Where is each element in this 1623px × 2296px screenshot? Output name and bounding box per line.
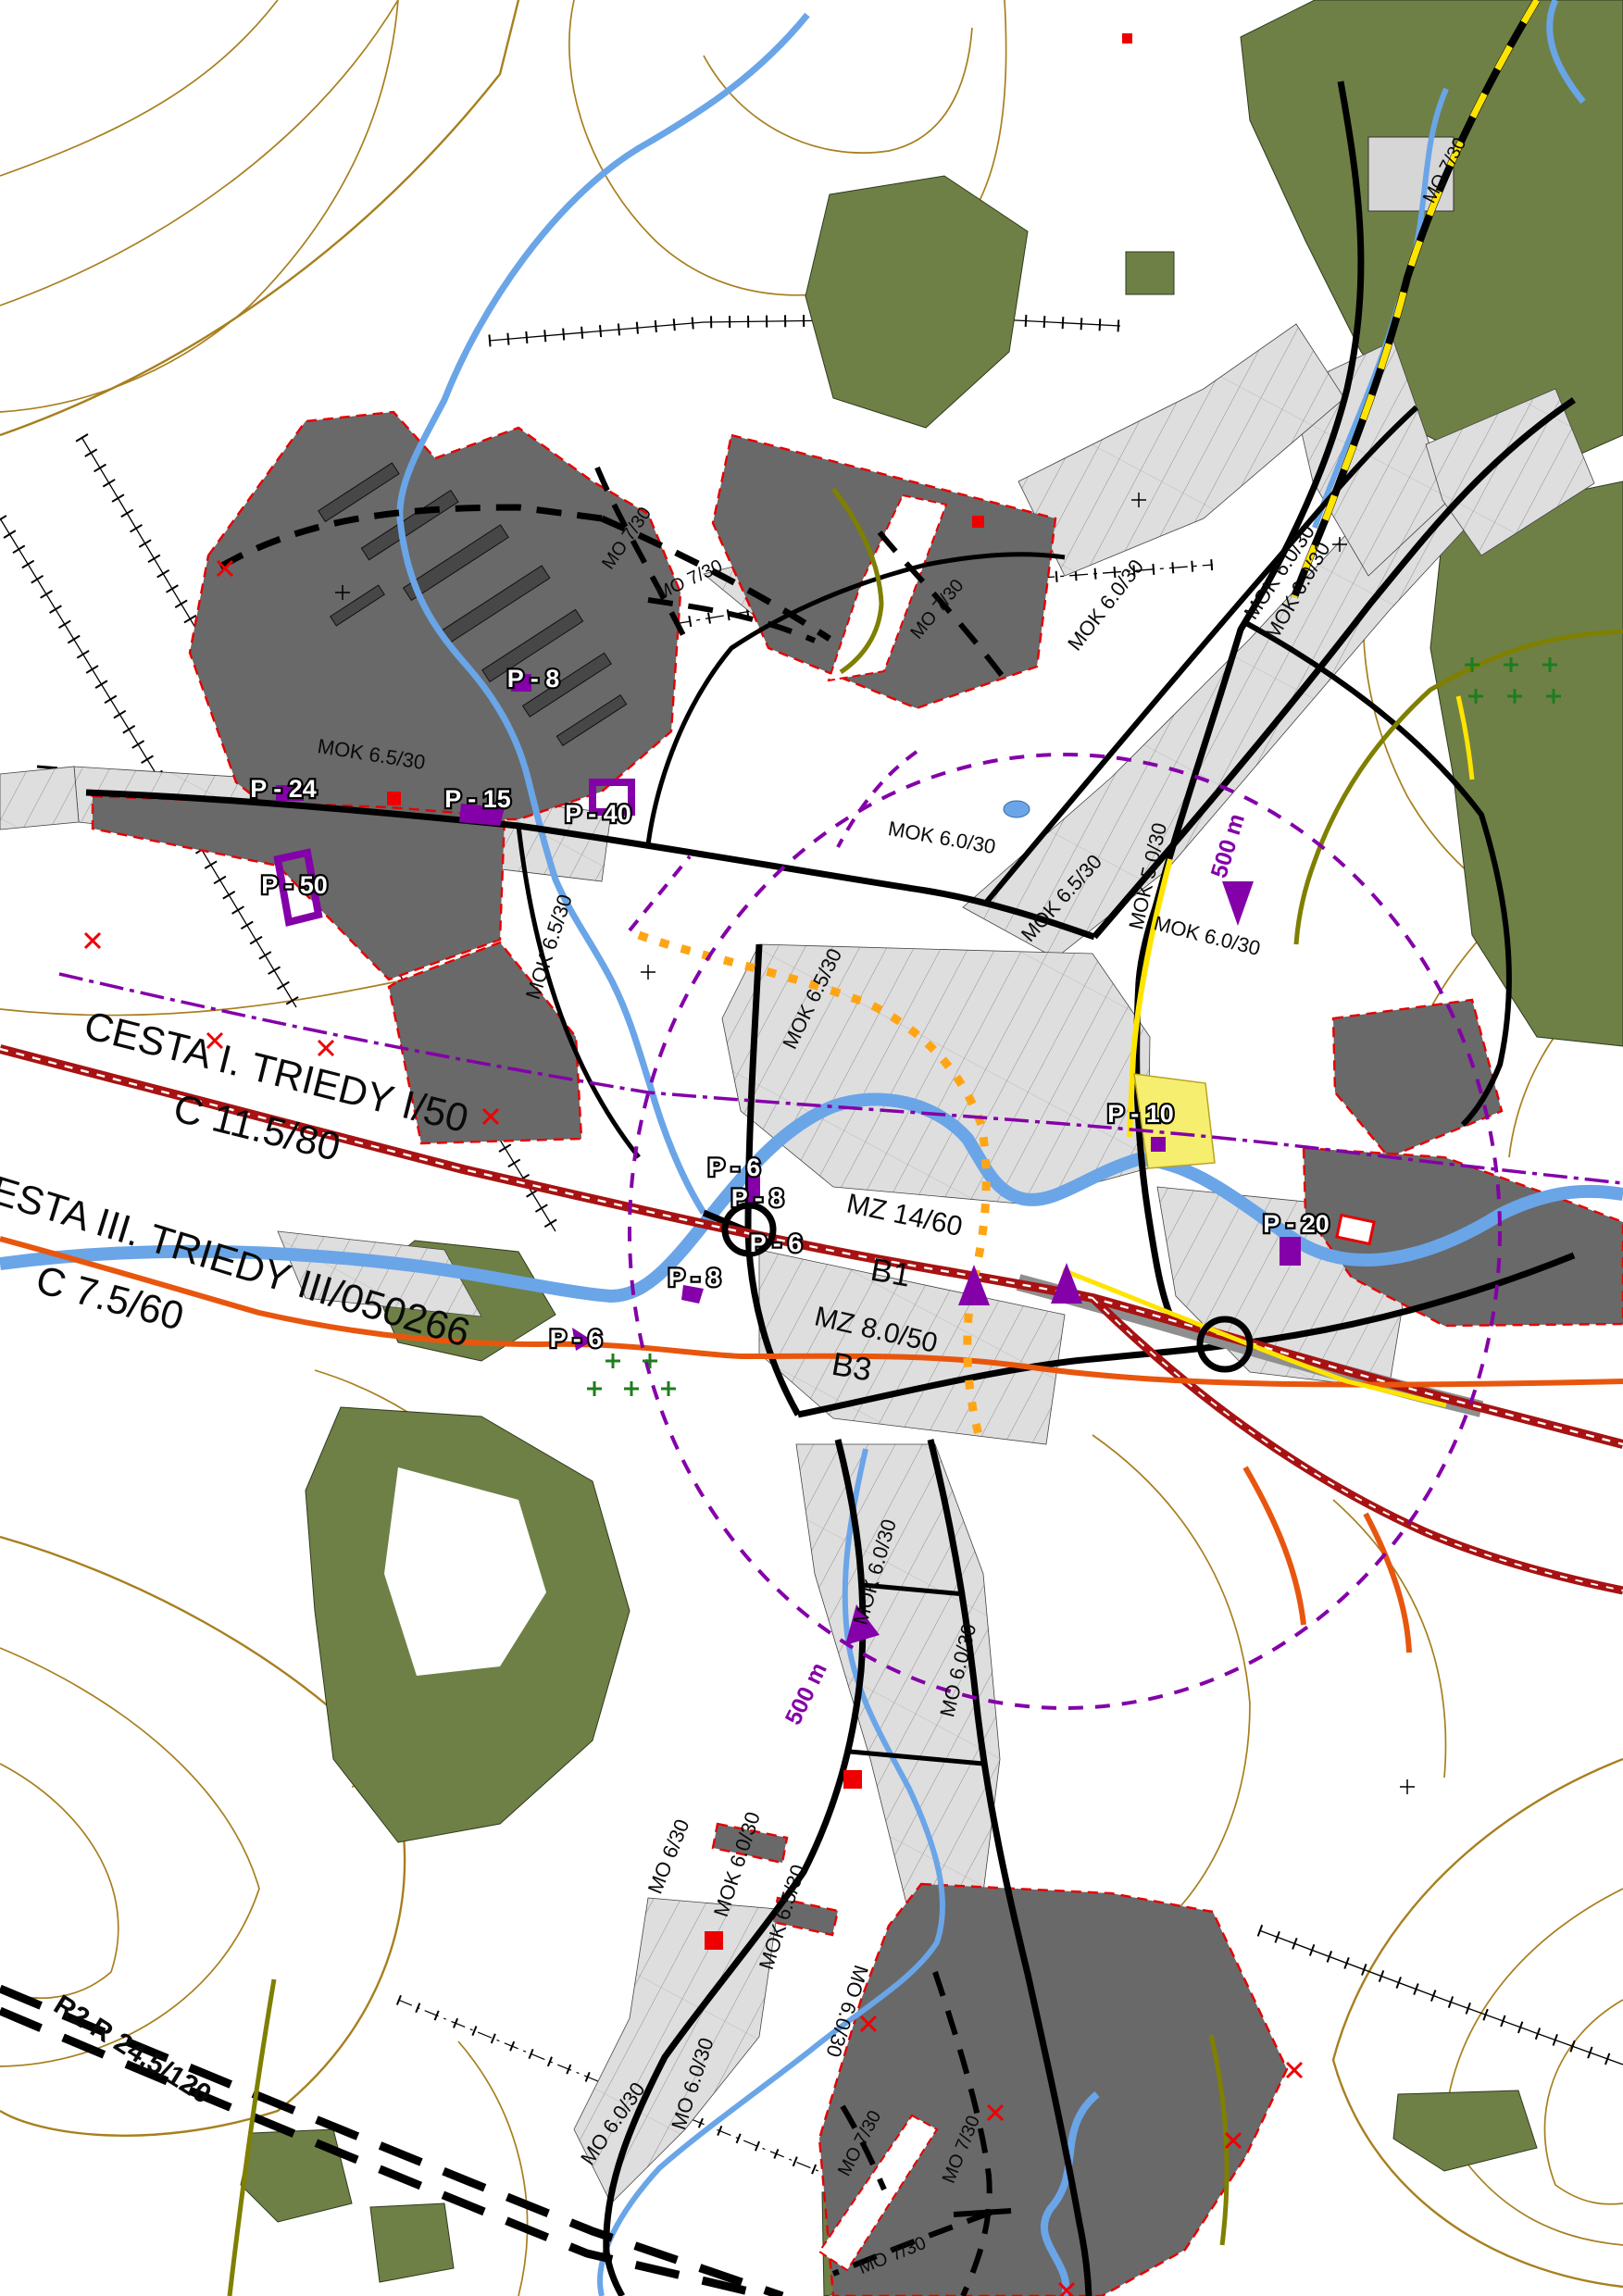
contour-line xyxy=(1092,1435,1250,1944)
point-label: P - 15 xyxy=(444,785,511,813)
survey-cross xyxy=(641,965,655,980)
red-square-marker xyxy=(705,1931,723,1950)
green-cross xyxy=(606,1354,620,1368)
road-stub xyxy=(954,2211,1011,2215)
point-label: P - 8 xyxy=(668,1264,721,1291)
forest xyxy=(805,176,1028,428)
point-label: P - 24 xyxy=(250,775,317,803)
green-cross xyxy=(587,1381,602,1396)
purple-arrow xyxy=(1222,881,1254,926)
contour-line xyxy=(0,0,518,435)
purple-dashed-line xyxy=(630,856,690,930)
radius-label: 500 m xyxy=(1206,811,1251,881)
red-x xyxy=(85,933,100,948)
point-label: P - 10 xyxy=(1107,1100,1174,1128)
point-label: P - 8 xyxy=(507,665,560,693)
contour-line xyxy=(458,2041,528,2296)
forest xyxy=(370,2203,454,2282)
road-label: MO 6/30 xyxy=(643,1816,694,1897)
dark-zone xyxy=(1333,1000,1502,1157)
road-label: MOK 6.0/30 xyxy=(886,817,997,858)
contour-line xyxy=(0,0,398,412)
green-cross xyxy=(643,1354,657,1368)
point-label: P - 8 xyxy=(731,1184,784,1212)
point-label: P - 50 xyxy=(261,871,328,899)
parcel-block xyxy=(722,944,1150,1204)
forest xyxy=(1126,252,1174,294)
contour-line xyxy=(1333,1759,1623,2287)
purple-parcel-p10 xyxy=(1151,1137,1166,1152)
green-cross xyxy=(661,1381,676,1396)
map-canvas[interactable]: MO 7/30 MO 7/30 MO 7/30 MO 7/30 MOK 6.0/… xyxy=(0,0,1623,2296)
zone-label: B1 xyxy=(868,1252,914,1294)
railway-ticks xyxy=(489,318,1120,341)
pond xyxy=(1004,801,1030,817)
point-label: P - 40 xyxy=(565,800,631,828)
purple-parcel-p20 xyxy=(1280,1237,1301,1266)
purple-arrow xyxy=(1051,1263,1082,1304)
point-label: P - 6 xyxy=(708,1154,761,1181)
red-square-marker xyxy=(972,516,984,528)
contour-line xyxy=(1544,2000,1623,2204)
road-ramp xyxy=(1245,1467,1304,1625)
radius-label: 500 m xyxy=(780,1658,832,1728)
point-label: P - 20 xyxy=(1263,1210,1330,1238)
red-square-marker xyxy=(387,792,401,805)
parcel-block xyxy=(0,767,79,830)
contour-line xyxy=(704,28,972,153)
forest xyxy=(1393,2090,1537,2171)
contour-line xyxy=(1333,1500,1446,1778)
contour-line xyxy=(0,0,278,176)
red-square-marker xyxy=(843,1770,862,1789)
red-x xyxy=(318,1041,333,1055)
red-square-marker xyxy=(1122,33,1132,44)
red-x xyxy=(1287,2063,1302,2078)
contour-line xyxy=(0,981,398,1016)
forest xyxy=(241,2129,352,2222)
zone-label: B3 xyxy=(830,1346,875,1389)
expressway-label: R2 R 24,5/120 xyxy=(48,1990,217,2111)
contour-line xyxy=(1444,1889,1623,2245)
green-cross xyxy=(624,1381,639,1396)
forest xyxy=(1430,481,1623,1046)
survey-cross xyxy=(1400,1779,1415,1794)
point-label: P - 6 xyxy=(750,1229,803,1257)
railway-line xyxy=(1259,1930,1623,2065)
point-label: P - 6 xyxy=(550,1325,603,1353)
road-label: MOK 6.0/30 xyxy=(1152,911,1263,960)
contour-line xyxy=(0,1764,119,1998)
